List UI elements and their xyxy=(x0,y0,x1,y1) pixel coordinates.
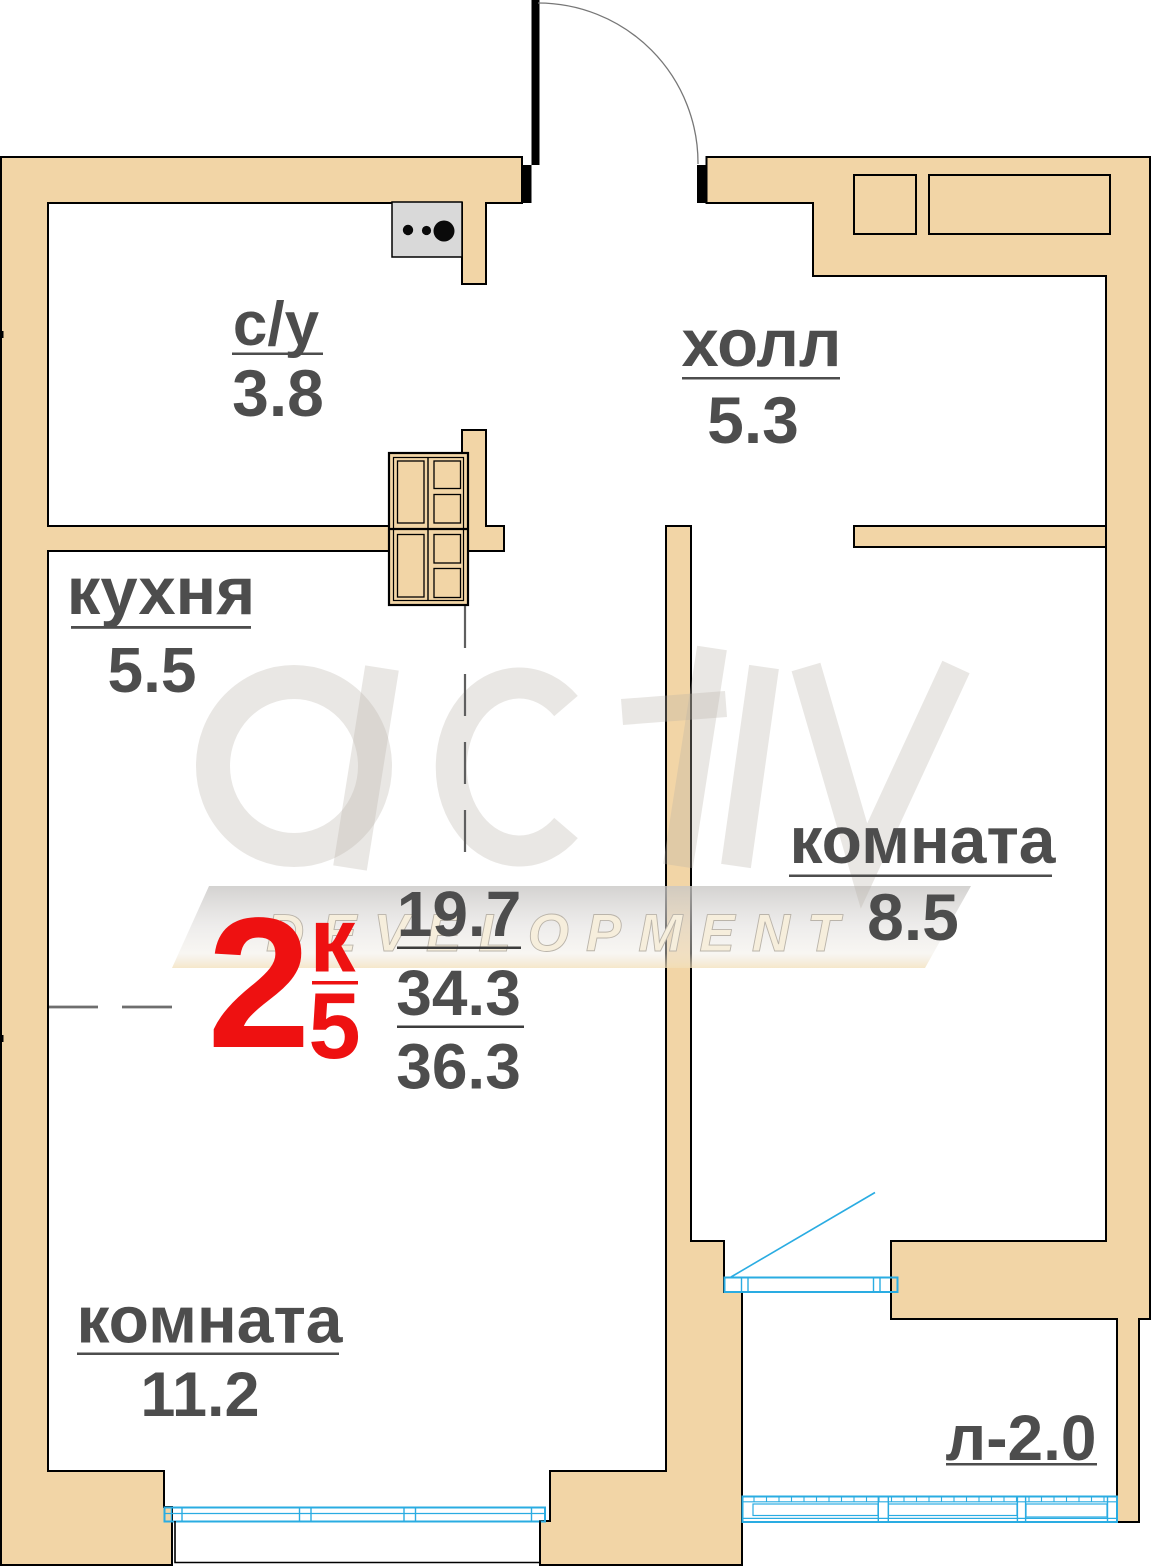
svg-text:8.5: 8.5 xyxy=(867,880,959,954)
svg-text:комната: комната xyxy=(789,803,1056,877)
svg-text:кухня: кухня xyxy=(67,554,255,629)
svg-text:36.3: 36.3 xyxy=(396,1031,521,1103)
svg-text:5: 5 xyxy=(308,973,360,1078)
svg-text:с/у: с/у xyxy=(233,290,320,359)
svg-text:5.3: 5.3 xyxy=(707,383,799,457)
svg-text:5.5: 5.5 xyxy=(108,634,197,706)
svg-text:комната: комната xyxy=(76,1283,343,1357)
svg-text:3.8: 3.8 xyxy=(232,356,324,430)
svg-text:2: 2 xyxy=(207,880,310,1087)
svg-text:19.7: 19.7 xyxy=(397,878,522,950)
svg-text:холл: холл xyxy=(682,306,842,381)
svg-text:34.3: 34.3 xyxy=(396,957,521,1029)
svg-text:11.2: 11.2 xyxy=(140,1360,259,1430)
